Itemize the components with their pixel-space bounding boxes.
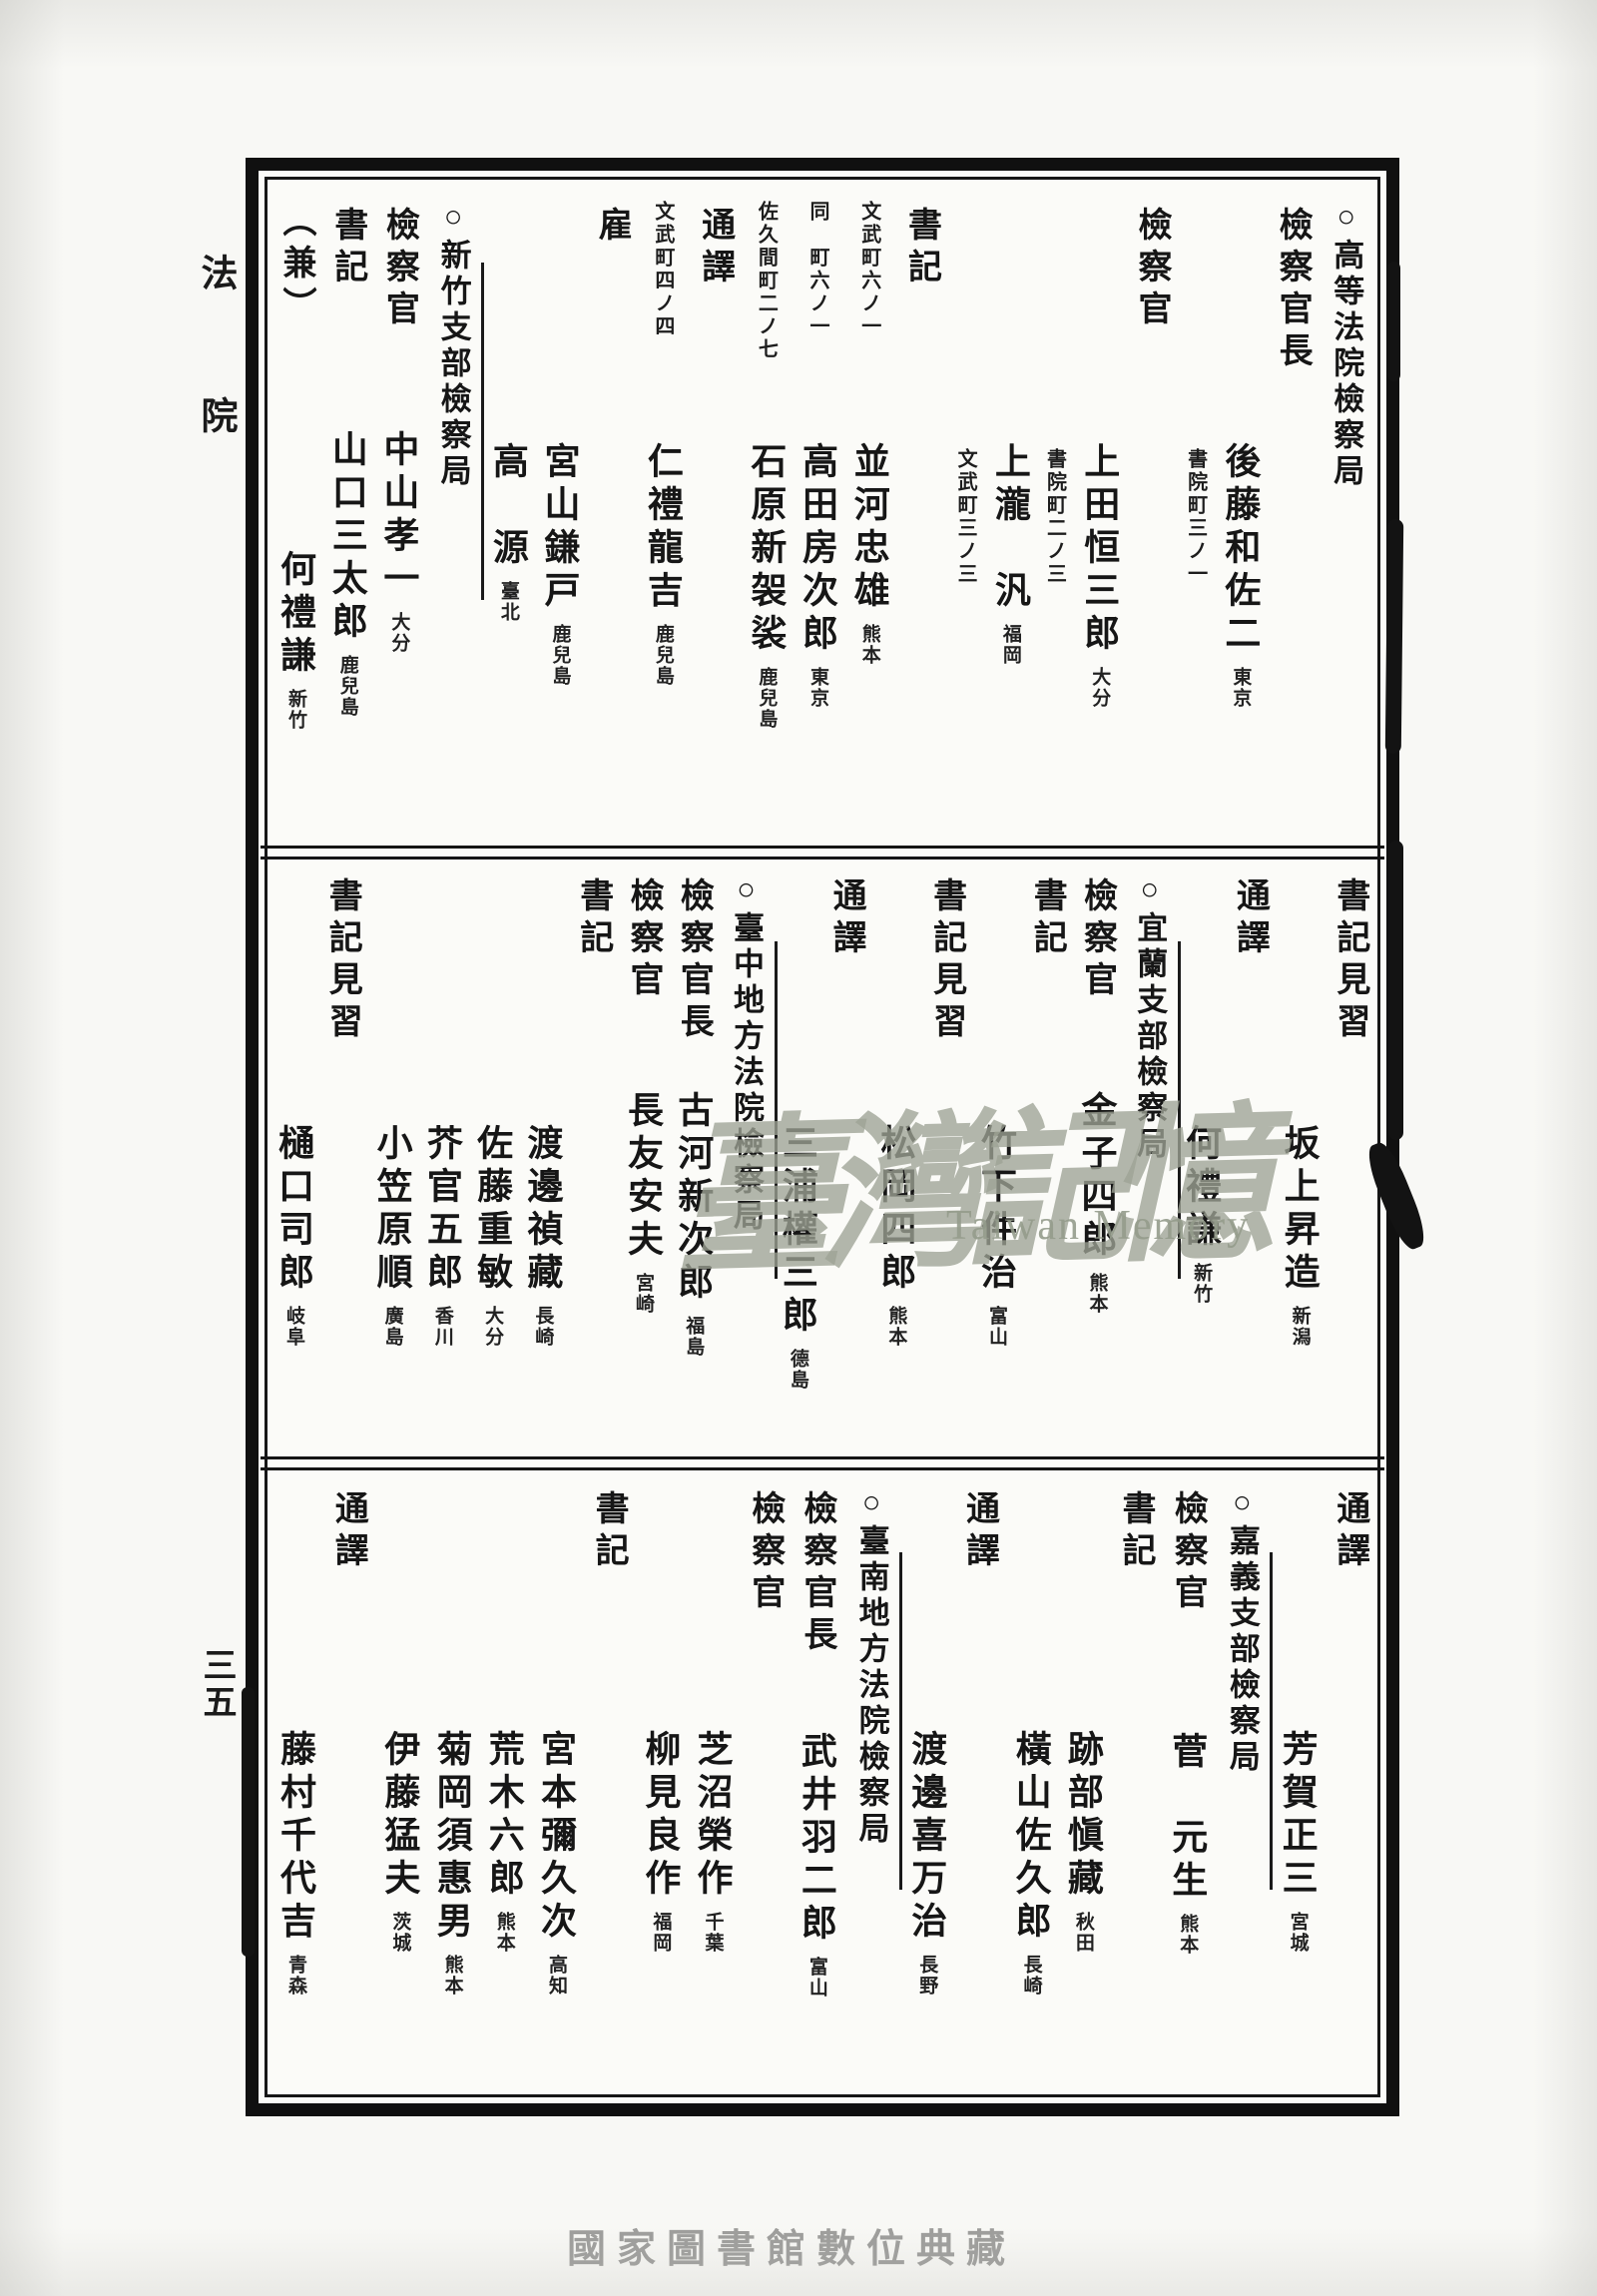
position-label: 檢察官 bbox=[381, 207, 415, 332]
text-column: ○新竹支部檢察局 bbox=[425, 191, 481, 838]
prefecture-label: 廣島 bbox=[383, 1306, 402, 1348]
text-column: 通譯 bbox=[322, 1480, 372, 2071]
prefecture-label: 高知 bbox=[547, 1955, 566, 1997]
text-column: 檢察官金子四郎熊本 bbox=[1072, 869, 1122, 1448]
text-column: ○嘉義支部檢察局 bbox=[1214, 1480, 1270, 2071]
footer-caption: 國家圖書館數位典藏 bbox=[567, 2218, 1016, 2274]
person-name: 伊藤猛夫茨城 bbox=[381, 1730, 417, 1954]
section-title: ○高等法院檢察局 bbox=[1331, 199, 1361, 490]
prefecture-label: 福島 bbox=[684, 1316, 703, 1358]
address-label: 文武町六ノ一 bbox=[859, 201, 879, 338]
prefecture-label: 大分 bbox=[483, 1306, 502, 1348]
prefecture-label: 新竹 bbox=[286, 689, 305, 731]
person-name: 宮山鎌戸鹿兒島 bbox=[542, 442, 578, 687]
position-label: 書記 bbox=[576, 877, 610, 961]
prefecture-label: 熊本 bbox=[1178, 1914, 1197, 1956]
prefecture-label: 岐阜 bbox=[284, 1306, 303, 1348]
prefecture-label: 熊本 bbox=[886, 1306, 905, 1348]
person-name: 山口三太郎鹿兒島 bbox=[329, 430, 365, 718]
prefecture-label: 長崎 bbox=[533, 1306, 552, 1348]
position-label: 檢察官 bbox=[1134, 207, 1168, 332]
person-name: 何禮謙新竹 bbox=[277, 550, 313, 731]
text-column: 松岡四郎熊本 bbox=[870, 869, 920, 1448]
text-column: 菊岡須惠男熊本 bbox=[427, 1480, 477, 2071]
text-column: 通譯 bbox=[690, 191, 740, 838]
position-label: 書記見習 bbox=[929, 877, 963, 1045]
scan-artifact bbox=[242, 1687, 255, 1957]
prefecture-label: 新潟 bbox=[1291, 1306, 1310, 1348]
position-label: 書記 bbox=[903, 207, 937, 290]
text-column: 通譯 bbox=[1224, 869, 1274, 1448]
prefecture-label: 大分 bbox=[389, 612, 408, 654]
person-name: 跡部愼藏秋田 bbox=[1065, 1730, 1101, 1954]
page-number: 三五 bbox=[192, 1647, 241, 1721]
text-column: 書記見習 bbox=[921, 869, 971, 1448]
text-column: 檢察官 bbox=[740, 1480, 790, 2071]
section-title: ○宜蘭支部檢察局 bbox=[1134, 871, 1165, 1163]
person-name: 高田房次郎東京 bbox=[799, 442, 835, 709]
person-name: 橫山佐久郎長崎 bbox=[1013, 1730, 1049, 1997]
scanned-page: 法院 三五 ○高等法院檢察局檢察官長後藤和佐二東京書院町三ノ一檢察官上田恒三郎大… bbox=[0, 0, 1597, 2296]
text-column: 書記 bbox=[583, 1480, 633, 2071]
person-name: 芳賀正三宮城 bbox=[1280, 1730, 1316, 1954]
margin-title: 法院 bbox=[188, 254, 242, 539]
position-label: 檢察官 bbox=[1080, 877, 1114, 1003]
prefecture-label: 熊本 bbox=[495, 1912, 514, 1954]
prefecture-label: 富山 bbox=[987, 1306, 1006, 1348]
section-title: ○嘉義支部檢察局 bbox=[1227, 1484, 1258, 1776]
section-title: ○臺南地方法院檢察局 bbox=[856, 1484, 887, 1848]
prefecture-label: 鹿兒島 bbox=[338, 655, 357, 718]
person-name: 芝沼榮作千葉 bbox=[695, 1730, 731, 1954]
position-label: 檢察官長 bbox=[1275, 207, 1309, 374]
text-column: 檢察官長武井羽二郎富山 bbox=[792, 1480, 841, 2071]
position-label: 檢察官長 bbox=[676, 877, 710, 1045]
person-name: 後藤和佐二東京 bbox=[1222, 442, 1258, 709]
text-column: 書院町二ノ三 bbox=[1037, 191, 1073, 838]
section-title: ○新竹支部檢察局 bbox=[438, 199, 469, 490]
prefecture-label: 宮崎 bbox=[634, 1273, 653, 1315]
position-label: 通譯 bbox=[1232, 877, 1266, 961]
text-band-bottom: 通譯芳賀正三宮城○嘉義支部檢察局檢察官菅 元生熊本書記跡部愼藏秋田橫山佐久郎長崎… bbox=[270, 1480, 1374, 2071]
text-band-top: ○高等法院檢察局檢察官長後藤和佐二東京書院町三ノ一檢察官上田恒三郎大分書院町二ノ… bbox=[270, 191, 1374, 838]
person-name: 宮本彌久次高知 bbox=[538, 1730, 574, 1997]
address-label: 同 町六ノ一 bbox=[807, 201, 827, 338]
position-label: 書記見習 bbox=[1332, 877, 1366, 1045]
prefecture-label: 熊本 bbox=[1088, 1273, 1107, 1315]
prefecture-label: 青森 bbox=[286, 1955, 305, 1997]
text-column: 芝沼榮作千葉 bbox=[688, 1480, 738, 2071]
prefecture-label: 鹿兒島 bbox=[654, 624, 673, 687]
document-frame: ○高等法院檢察局檢察官長後藤和佐二東京書院町三ノ一檢察官上田恒三郎大分書院町二ノ… bbox=[246, 158, 1399, 2116]
prefecture-label: 千葉 bbox=[704, 1912, 723, 1954]
text-column: 檢察官長古河新次郎福島 bbox=[668, 869, 718, 1448]
band-divider bbox=[261, 1456, 1384, 1470]
position-label: 通譯 bbox=[1332, 1490, 1366, 1574]
address-label: 文武町四ノ四 bbox=[653, 201, 673, 338]
person-name: 武井羽二郎富山 bbox=[798, 1732, 834, 1999]
address-label: 佐久間町二ノ七 bbox=[756, 201, 776, 361]
text-column: 竹下件治富山 bbox=[971, 869, 1021, 1448]
position-label: 書記見習 bbox=[324, 877, 358, 1045]
text-column: 跡部愼藏秋田 bbox=[1058, 1480, 1108, 2071]
prefecture-label: 東京 bbox=[808, 667, 827, 709]
person-name: 古河新次郎福島 bbox=[675, 1091, 711, 1358]
text-column: 荒木六郎熊本 bbox=[479, 1480, 529, 2071]
prefecture-label: 香川 bbox=[433, 1306, 452, 1348]
text-column: 橫山佐久郎長崎 bbox=[1006, 1480, 1056, 2071]
scan-artifact bbox=[1387, 262, 1400, 381]
address-label: 書院町三ノ一 bbox=[1186, 448, 1206, 586]
person-name: 金子四郎熊本 bbox=[1079, 1091, 1115, 1315]
position-label: 通譯 bbox=[961, 1490, 995, 1574]
person-name: 竹下件治富山 bbox=[978, 1124, 1014, 1348]
position-label: 通譯 bbox=[828, 877, 862, 961]
position-label: 書記 bbox=[591, 1490, 625, 1574]
text-column: 宮山鎌戸鹿兒島 bbox=[535, 191, 585, 838]
person-name: 樋口司郎岐阜 bbox=[275, 1124, 311, 1348]
section-divider-line bbox=[1270, 1552, 1273, 1890]
prefecture-label: 富山 bbox=[807, 1957, 826, 1999]
section-divider-line bbox=[899, 1552, 902, 1890]
text-column: 文武町三ノ三 bbox=[947, 191, 983, 838]
position-label: 檢察官 bbox=[626, 877, 660, 1003]
scan-artifact bbox=[1388, 841, 1403, 1140]
text-column: 檢察官長 bbox=[1267, 191, 1317, 838]
text-column: 高 源臺北 bbox=[483, 191, 533, 838]
position-label: 通譯 bbox=[330, 1490, 364, 1574]
section-divider-line bbox=[775, 941, 778, 1279]
person-name: 渡邊喜万治長野 bbox=[908, 1730, 944, 1997]
prefecture-label: 福岡 bbox=[651, 1912, 670, 1954]
position-label: 檢察官 bbox=[1170, 1490, 1204, 1616]
text-column: 書記山口三太郎鹿兒島 bbox=[322, 191, 372, 838]
prefecture-label: 熊本 bbox=[443, 1955, 462, 1997]
person-name: 何禮謙新竹 bbox=[1183, 1124, 1219, 1305]
text-column: 通譯 bbox=[953, 1480, 1003, 2071]
section-divider-line bbox=[481, 263, 484, 600]
prefecture-label: 宮城 bbox=[1289, 1912, 1308, 1954]
text-column: ○高等法院檢察局 bbox=[1319, 191, 1374, 838]
text-column: ○宜蘭支部檢察局 bbox=[1122, 869, 1178, 1448]
person-name: 松岡四郎熊本 bbox=[877, 1124, 913, 1348]
person-name: 渡邊禎藏長崎 bbox=[524, 1124, 560, 1348]
prefecture-label: 秋田 bbox=[1074, 1912, 1093, 1954]
text-column: 樋口司郎岐阜 bbox=[270, 869, 316, 1448]
text-column: 渡邊喜万治長野 bbox=[901, 1480, 951, 2071]
text-column: 書記 bbox=[1021, 869, 1071, 1448]
text-column: 同 町六ノ一高田房次郎東京 bbox=[793, 191, 842, 838]
text-column: 通譯 bbox=[1325, 1480, 1374, 2071]
text-column: 芳賀正三宮城 bbox=[1273, 1480, 1323, 2071]
person-name: 小笠原順廣島 bbox=[374, 1124, 410, 1348]
prefecture-label: 東京 bbox=[1231, 667, 1250, 709]
prefecture-label: 長崎 bbox=[1022, 1955, 1041, 1997]
person-name: 藤村千代吉青森 bbox=[277, 1730, 313, 1997]
person-name: 菊岡須惠男熊本 bbox=[434, 1730, 470, 1997]
person-name: 仁禮龍吉鹿兒島 bbox=[645, 442, 681, 687]
text-column: 宮本彌久次高知 bbox=[531, 1480, 581, 2071]
person-name: 坂上昇造新潟 bbox=[1282, 1124, 1318, 1348]
prefecture-label: 鹿兒島 bbox=[551, 624, 570, 687]
position-label: 書記 bbox=[330, 207, 364, 290]
text-column: 渡邊禎藏長崎 bbox=[517, 869, 567, 1448]
text-column: 書記見習 bbox=[1325, 869, 1374, 1448]
text-column: 藤村千代吉青森 bbox=[270, 1480, 320, 2071]
section-divider-line bbox=[1178, 941, 1181, 1279]
text-column: 雇 bbox=[586, 191, 636, 838]
prefecture-label: 福岡 bbox=[1001, 624, 1020, 666]
position-label: 檢察官 bbox=[748, 1490, 782, 1616]
person-name: 柳見良作福岡 bbox=[642, 1730, 678, 1954]
prefecture-label: 德島 bbox=[789, 1349, 807, 1391]
position-label: 書記 bbox=[1118, 1490, 1152, 1574]
text-column: 文武町四ノ四仁禮龍吉鹿兒島 bbox=[638, 191, 688, 838]
position-label: 檢察官長 bbox=[799, 1490, 833, 1658]
prefecture-label: 臺北 bbox=[499, 581, 518, 623]
text-column: 檢察官菅 元生熊本 bbox=[1162, 1480, 1212, 2071]
position-label: 通譯 bbox=[698, 207, 732, 290]
address-label: 書院町二ノ三 bbox=[1045, 448, 1065, 586]
position-label: （兼） bbox=[278, 203, 312, 328]
person-name: 三浦權三郎德島 bbox=[780, 1124, 815, 1391]
person-name: 芥官五郎香川 bbox=[424, 1124, 460, 1348]
person-name: 高 源臺北 bbox=[490, 442, 526, 623]
person-name: 上瀧 汎福岡 bbox=[992, 442, 1028, 666]
text-column: 芥官五郎香川 bbox=[417, 869, 467, 1448]
person-name: 菅 元生熊本 bbox=[1169, 1732, 1205, 1956]
prefecture-label: 茨城 bbox=[390, 1912, 409, 1954]
text-column: 書院町三ノ一 bbox=[1178, 191, 1214, 838]
prefecture-label: 鹿兒島 bbox=[757, 667, 776, 730]
person-name: 中山孝一大分 bbox=[380, 430, 416, 654]
band-divider bbox=[261, 846, 1384, 860]
text-band-middle: 書記見習坂上昇造新潟通譯何禮謙新竹○宜蘭支部檢察局檢察官金子四郎熊本書記竹下件治… bbox=[270, 869, 1374, 1448]
text-column: 小笠原順廣島 bbox=[367, 869, 417, 1448]
prefecture-label: 新竹 bbox=[1192, 1263, 1211, 1305]
text-column: 佐久間町二ノ七石原新袈裟鹿兒島 bbox=[741, 191, 791, 838]
prefecture-label: 長野 bbox=[917, 1955, 936, 1997]
text-column: 檢察官 bbox=[1126, 191, 1176, 838]
text-column: ○臺南地方法院檢察局 bbox=[843, 1480, 899, 2071]
text-column: 書記 bbox=[895, 191, 945, 838]
text-column: 伊藤猛夫茨城 bbox=[374, 1480, 424, 2071]
person-name: 長友安夫宮崎 bbox=[625, 1091, 661, 1315]
text-column: 書記 bbox=[568, 869, 618, 1448]
text-column: 書記 bbox=[1110, 1480, 1160, 2071]
address-label: 文武町三ノ三 bbox=[955, 448, 975, 586]
text-column: 柳見良作福岡 bbox=[635, 1480, 685, 2071]
person-name: 佐藤重敏大分 bbox=[474, 1124, 510, 1348]
text-column: 檢察官中山孝一大分 bbox=[373, 191, 423, 838]
text-column: 書記見習 bbox=[316, 869, 366, 1448]
position-label: 書記 bbox=[1029, 877, 1063, 961]
prefecture-label: 大分 bbox=[1090, 667, 1109, 709]
text-column: 後藤和佐二東京 bbox=[1215, 191, 1265, 838]
text-column: 坂上昇造新潟 bbox=[1275, 869, 1325, 1448]
text-column: 上田恒三郎大分 bbox=[1074, 191, 1124, 838]
section-title: ○臺中地方法院檢察局 bbox=[731, 871, 762, 1235]
text-column: 佐藤重敏大分 bbox=[467, 869, 517, 1448]
text-column: 通譯 bbox=[820, 869, 870, 1448]
text-column: 何禮謙新竹 bbox=[1178, 869, 1224, 1448]
person-name: 荒木六郎熊本 bbox=[486, 1730, 522, 1954]
person-name: 上田恒三郎大分 bbox=[1081, 442, 1117, 709]
text-column: 文武町六ノ一並河忠雄熊本 bbox=[844, 191, 894, 838]
prefecture-label: 熊本 bbox=[860, 624, 879, 666]
person-name: 並河忠雄熊本 bbox=[851, 442, 887, 666]
scan-artifact bbox=[1385, 519, 1403, 754]
position-label: 雇 bbox=[594, 207, 628, 249]
text-column: 檢察官長友安夫宮崎 bbox=[618, 869, 668, 1448]
person-name: 石原新袈裟鹿兒島 bbox=[748, 442, 784, 730]
text-column: ○臺中地方法院檢察局 bbox=[719, 869, 775, 1448]
text-column: 上瀧 汎福岡 bbox=[985, 191, 1035, 838]
text-column: 三浦權三郎德島 bbox=[775, 869, 820, 1448]
text-column: （兼）何禮謙新竹 bbox=[270, 191, 320, 838]
